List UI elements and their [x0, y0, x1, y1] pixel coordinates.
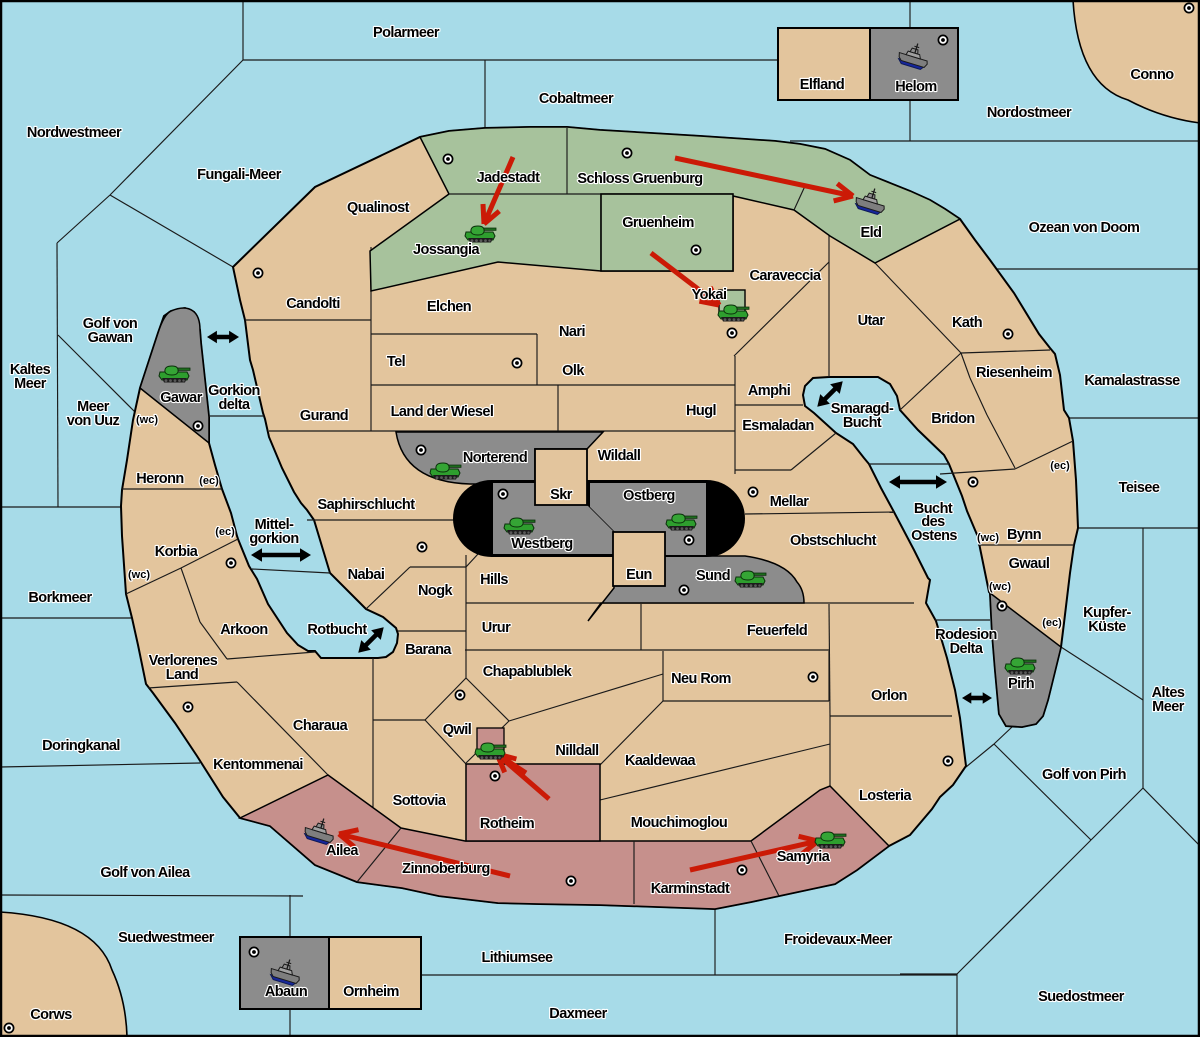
svg-text:Esmaladan: Esmaladan [742, 418, 814, 434]
svg-text:Ornheim: Ornheim [343, 984, 399, 1000]
svg-text:Gurand: Gurand [300, 408, 348, 424]
svg-text:Golf von Ailea: Golf von Ailea [100, 865, 191, 881]
svg-text:Doringkanal: Doringkanal [42, 738, 120, 754]
svg-text:Abaun: Abaun [265, 984, 307, 1000]
svg-text:Corws: Corws [30, 1007, 72, 1023]
svg-text:Wildall: Wildall [598, 448, 641, 464]
svg-text:Eld: Eld [861, 225, 882, 241]
svg-text:Riesenheim: Riesenheim [976, 365, 1052, 381]
svg-text:Cobaltmeer: Cobaltmeer [539, 91, 614, 107]
svg-text:Kentommenai: Kentommenai [213, 757, 303, 773]
svg-text:Yokai: Yokai [692, 287, 727, 303]
svg-text:Ailea: Ailea [326, 843, 359, 859]
svg-text:Mouchimoglou: Mouchimoglou [631, 815, 728, 831]
svg-text:Korbia: Korbia [155, 544, 199, 560]
svg-text:Saphirschlucht: Saphirschlucht [317, 497, 415, 513]
svg-text:Bridon: Bridon [931, 411, 974, 427]
svg-text:Bucht: Bucht [843, 415, 882, 431]
svg-text:Fungali-Meer: Fungali-Meer [197, 167, 282, 183]
svg-text:Polarmeer: Polarmeer [373, 25, 440, 41]
svg-text:Helom: Helom [895, 79, 937, 95]
svg-text:Eun: Eun [626, 567, 652, 583]
svg-text:Delta: Delta [950, 641, 984, 657]
svg-text:Feuerfeld: Feuerfeld [747, 623, 807, 639]
svg-text:Urur: Urur [482, 620, 511, 636]
svg-text:Land: Land [166, 667, 198, 683]
svg-text:Froidevaux-Meer: Froidevaux-Meer [784, 932, 893, 948]
svg-text:Orlon: Orlon [871, 688, 907, 704]
svg-text:(wc): (wc) [128, 569, 150, 581]
svg-text:Qualinost: Qualinost [347, 200, 410, 216]
svg-text:Küste: Küste [1088, 619, 1126, 635]
svg-text:Gruenheim: Gruenheim [622, 215, 694, 231]
svg-text:Elfland: Elfland [800, 77, 845, 93]
svg-text:Neu Rom: Neu Rom [671, 671, 731, 687]
svg-text:(wc): (wc) [989, 581, 1011, 593]
svg-text:Hugl: Hugl [686, 403, 716, 419]
svg-text:Sund: Sund [696, 568, 730, 584]
svg-text:Nordwestmeer: Nordwestmeer [27, 125, 122, 141]
svg-text:Losteria: Losteria [859, 788, 912, 804]
svg-text:Olk: Olk [562, 363, 585, 379]
svg-text:Nilldall: Nilldall [555, 743, 598, 759]
svg-text:Meer: Meer [14, 376, 47, 392]
svg-text:Land der Wiesel: Land der Wiesel [391, 404, 494, 420]
svg-text:Obstschlucht: Obstschlucht [790, 533, 877, 549]
svg-text:Heronn: Heronn [136, 471, 183, 487]
svg-text:Amphi: Amphi [748, 383, 790, 399]
svg-text:Nordostmeer: Nordostmeer [987, 105, 1072, 121]
svg-text:Chapablublek: Chapablublek [483, 664, 573, 680]
svg-text:Charaua: Charaua [293, 718, 349, 734]
svg-text:Pirh: Pirh [1008, 676, 1034, 692]
svg-text:(wc): (wc) [136, 414, 158, 426]
svg-text:Suedostmeer: Suedostmeer [1038, 989, 1125, 1005]
svg-text:Teisee: Teisee [1119, 480, 1160, 496]
svg-text:Caraveccia: Caraveccia [749, 268, 822, 284]
svg-text:Barana: Barana [405, 642, 452, 658]
svg-text:Zinnoberburg: Zinnoberburg [402, 861, 490, 877]
svg-text:Westberg: Westberg [511, 536, 572, 552]
svg-text:Schloss Gruenburg: Schloss Gruenburg [577, 171, 702, 187]
svg-text:Daxmeer: Daxmeer [549, 1006, 607, 1022]
svg-text:Rotheim: Rotheim [480, 816, 534, 832]
svg-text:(wc): (wc) [977, 532, 999, 544]
svg-text:Jossangia: Jossangia [413, 242, 480, 258]
svg-text:(ec): (ec) [199, 475, 219, 487]
svg-text:Utar: Utar [858, 313, 886, 329]
svg-text:Hills: Hills [480, 572, 508, 588]
svg-text:Candolti: Candolti [286, 296, 340, 312]
svg-text:Qwil: Qwil [443, 722, 471, 738]
svg-text:(ec): (ec) [1042, 617, 1062, 629]
svg-text:Suedwestmeer: Suedwestmeer [118, 930, 215, 946]
svg-text:Skr: Skr [550, 487, 573, 503]
svg-text:Kaaldewaa: Kaaldewaa [625, 753, 696, 769]
svg-text:Borkmeer: Borkmeer [28, 590, 92, 606]
svg-text:Norterend: Norterend [463, 450, 527, 466]
svg-text:(ec): (ec) [1050, 460, 1070, 472]
svg-text:Ozean von Doom: Ozean von Doom [1029, 220, 1140, 236]
svg-text:(ec): (ec) [215, 526, 235, 538]
svg-text:Golf von Pirh: Golf von Pirh [1042, 767, 1126, 783]
svg-text:Samyria: Samyria [777, 849, 831, 865]
svg-text:Gawan: Gawan [88, 330, 133, 346]
svg-text:Conno: Conno [1130, 67, 1174, 83]
svg-text:Jadestadt: Jadestadt [477, 170, 540, 186]
svg-text:Kamalastrasse: Kamalastrasse [1084, 373, 1180, 389]
svg-text:Kath: Kath [952, 315, 982, 331]
svg-text:Nari: Nari [559, 324, 585, 340]
svg-text:Arkoon: Arkoon [220, 622, 267, 638]
svg-text:Mellar: Mellar [770, 494, 810, 510]
svg-text:Meer: Meer [1152, 699, 1185, 715]
svg-text:delta: delta [218, 397, 251, 413]
svg-text:Elchen: Elchen [427, 299, 471, 315]
svg-text:von Uuz: von Uuz [67, 413, 120, 429]
svg-text:Karminstadt: Karminstadt [651, 881, 730, 897]
svg-text:Gwaul: Gwaul [1009, 556, 1050, 572]
svg-text:Ostens: Ostens [911, 528, 957, 544]
svg-text:gorkion: gorkion [249, 531, 298, 547]
svg-text:Tel: Tel [387, 354, 405, 370]
svg-text:Gawar: Gawar [160, 390, 202, 406]
svg-text:Lithiumsee: Lithiumsee [481, 950, 553, 966]
svg-text:Nabai: Nabai [348, 567, 385, 583]
svg-text:Ostberg: Ostberg [623, 488, 675, 504]
svg-text:Bynn: Bynn [1007, 527, 1041, 543]
svg-text:Nogk: Nogk [418, 583, 454, 599]
svg-text:Sottovia: Sottovia [393, 793, 447, 809]
svg-text:Rotbucht: Rotbucht [307, 622, 367, 638]
